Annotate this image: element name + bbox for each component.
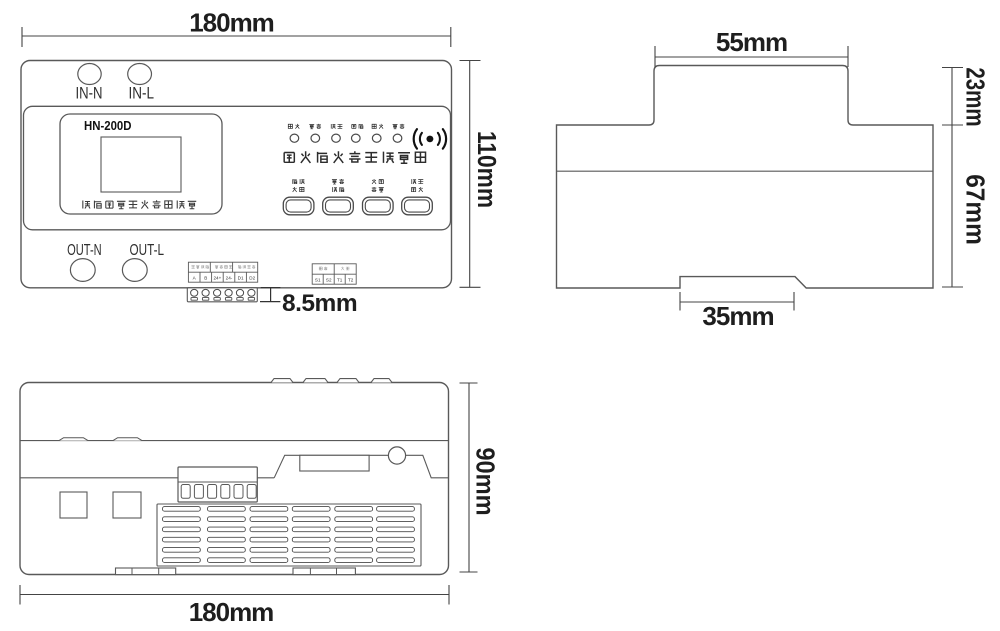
svg-text:T2: T2 <box>348 278 354 283</box>
svg-text:S2: S2 <box>326 278 332 283</box>
svg-text:90mm: 90mm <box>470 447 498 515</box>
svg-text:OUT-N: OUT-N <box>67 242 102 259</box>
svg-text:35mm: 35mm <box>702 301 773 331</box>
svg-text:B: B <box>204 276 207 281</box>
svg-text:180mm: 180mm <box>189 8 274 38</box>
svg-text:23mm: 23mm <box>961 67 990 126</box>
svg-text:T1: T1 <box>337 278 343 283</box>
svg-text:24+: 24+ <box>214 276 222 281</box>
svg-text:S1: S1 <box>315 278 321 283</box>
svg-text:55mm: 55mm <box>716 27 787 57</box>
svg-text:D2: D2 <box>249 276 255 281</box>
svg-text:OUT-L: OUT-L <box>130 242 165 259</box>
svg-text:IN-L: IN-L <box>129 84 155 103</box>
svg-text:HN-200D: HN-200D <box>84 119 132 133</box>
svg-text:110mm: 110mm <box>472 131 501 208</box>
svg-text:67mm: 67mm <box>960 174 989 245</box>
svg-text:8.5mm: 8.5mm <box>282 290 357 317</box>
svg-text:D1: D1 <box>238 276 244 281</box>
svg-text:180mm: 180mm <box>189 597 274 627</box>
svg-text:IN-N: IN-N <box>76 84 103 103</box>
svg-text:24-: 24- <box>226 276 233 281</box>
